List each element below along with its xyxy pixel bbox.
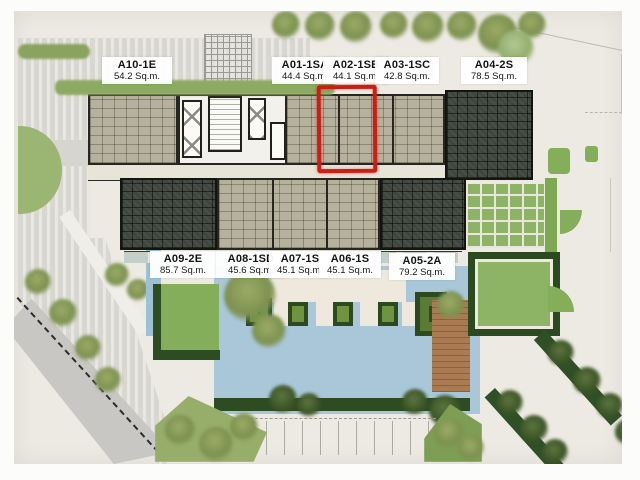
elevator-shaft bbox=[182, 100, 202, 158]
tree bbox=[542, 439, 568, 465]
tree bbox=[573, 367, 601, 395]
unit-area: 79.2 Sq.m. bbox=[391, 268, 453, 279]
lawn-quarter-circle bbox=[560, 210, 582, 234]
unit-label-a03-1sc: A03-1SC 42.8 Sq.m. bbox=[375, 57, 439, 84]
unit-plan-a04 bbox=[445, 90, 533, 180]
tree bbox=[458, 435, 484, 461]
garden-guide-line bbox=[610, 178, 611, 252]
unit-area: 42.8 Sq.m. bbox=[377, 72, 437, 83]
lawn-patch bbox=[548, 148, 570, 174]
tree bbox=[199, 427, 233, 461]
garden-hedge-frame bbox=[468, 252, 560, 336]
parking-bay-lines bbox=[248, 421, 430, 455]
unit-name: A06-1S bbox=[321, 253, 379, 266]
pool-planter bbox=[288, 302, 308, 326]
unit-name: A09-2E bbox=[152, 253, 214, 266]
tree bbox=[497, 390, 523, 416]
tree bbox=[75, 335, 101, 361]
unit-name: A03-1SC bbox=[377, 59, 437, 72]
tree bbox=[269, 385, 297, 413]
tree bbox=[437, 291, 465, 319]
hedge-strip-vertical bbox=[545, 178, 557, 252]
unit-area: 85.7 Sq.m. bbox=[152, 266, 214, 277]
pool-bridge bbox=[360, 302, 379, 326]
tree bbox=[520, 415, 548, 443]
setback-dash-line bbox=[240, 418, 436, 419]
hedge-row-top-left bbox=[18, 44, 90, 59]
photo-margin-top bbox=[0, 0, 640, 11]
unit-plan-a09 bbox=[120, 178, 217, 250]
tree bbox=[412, 11, 444, 43]
highlighted-unit-outline bbox=[317, 85, 378, 173]
unit-plan-a08-a06 bbox=[217, 178, 380, 250]
unit-plan-a05 bbox=[380, 178, 466, 250]
tree bbox=[272, 11, 300, 39]
unit-name: A10-1E bbox=[104, 59, 170, 72]
boundary-dash-right bbox=[585, 112, 627, 113]
tree bbox=[25, 269, 51, 295]
unit-area: 78.5 Sq.m. bbox=[463, 72, 525, 83]
pool-planter bbox=[333, 302, 353, 326]
photo-margin-left bbox=[0, 0, 14, 480]
lawn-quarter-circle bbox=[548, 286, 574, 312]
tree bbox=[95, 367, 121, 393]
tree bbox=[230, 413, 258, 441]
hedge-lawn-west-edge bbox=[153, 284, 161, 356]
unit-label-a06-1s: A06-1S 45.1 Sq.m. bbox=[319, 251, 381, 278]
site-plan-photo: A10-1E 54.2 Sq.m. A01-1SA 44.4 Sq.m. A02… bbox=[0, 0, 640, 480]
pool-lawn-west bbox=[159, 284, 219, 354]
pool-planter bbox=[378, 302, 398, 326]
tree bbox=[597, 393, 623, 419]
tree bbox=[297, 393, 321, 417]
pool-bridge bbox=[402, 302, 416, 326]
unit-label-a10-1e: A10-1E 54.2 Sq.m. bbox=[102, 57, 172, 84]
service-room bbox=[270, 122, 286, 160]
site-plan-canvas: A10-1E 54.2 Sq.m. A01-1SA 44.4 Sq.m. A02… bbox=[14, 11, 622, 464]
tree bbox=[548, 340, 574, 366]
lawn-patch bbox=[585, 146, 598, 162]
unit-divider bbox=[392, 94, 394, 165]
unit-name: A05-2A bbox=[391, 255, 453, 268]
tree bbox=[49, 299, 77, 327]
unit-plan-a10 bbox=[88, 94, 178, 165]
stairwell bbox=[208, 96, 242, 152]
tree bbox=[305, 11, 335, 41]
unit-area: 54.2 Sq.m. bbox=[104, 72, 170, 83]
tree bbox=[252, 314, 286, 348]
garden-lawn-stepping-stones bbox=[466, 184, 544, 248]
unit-divider bbox=[326, 178, 328, 250]
unit-label-a04-2s: A04-2S 78.5 Sq.m. bbox=[461, 57, 527, 84]
hedge-lawn-south-edge bbox=[153, 350, 220, 360]
unit-area: 45.1 Sq.m. bbox=[321, 266, 379, 277]
unit-name: A04-2S bbox=[463, 59, 525, 72]
tree bbox=[105, 263, 129, 287]
unit-label-a09-2e: A09-2E 85.7 Sq.m. bbox=[150, 251, 216, 278]
tree bbox=[402, 389, 428, 415]
tree bbox=[447, 11, 477, 41]
photo-margin-bottom bbox=[0, 464, 640, 480]
tree bbox=[340, 11, 372, 43]
elevator-shaft bbox=[248, 98, 266, 140]
unit-label-a05-2a: A05-2A 79.2 Sq.m. bbox=[389, 253, 455, 280]
photo-margin-right bbox=[622, 0, 640, 480]
tree bbox=[380, 11, 408, 39]
trellis-grid bbox=[204, 34, 252, 86]
tree bbox=[165, 415, 195, 445]
pool-bridge bbox=[316, 302, 334, 326]
unit-divider bbox=[272, 178, 274, 250]
